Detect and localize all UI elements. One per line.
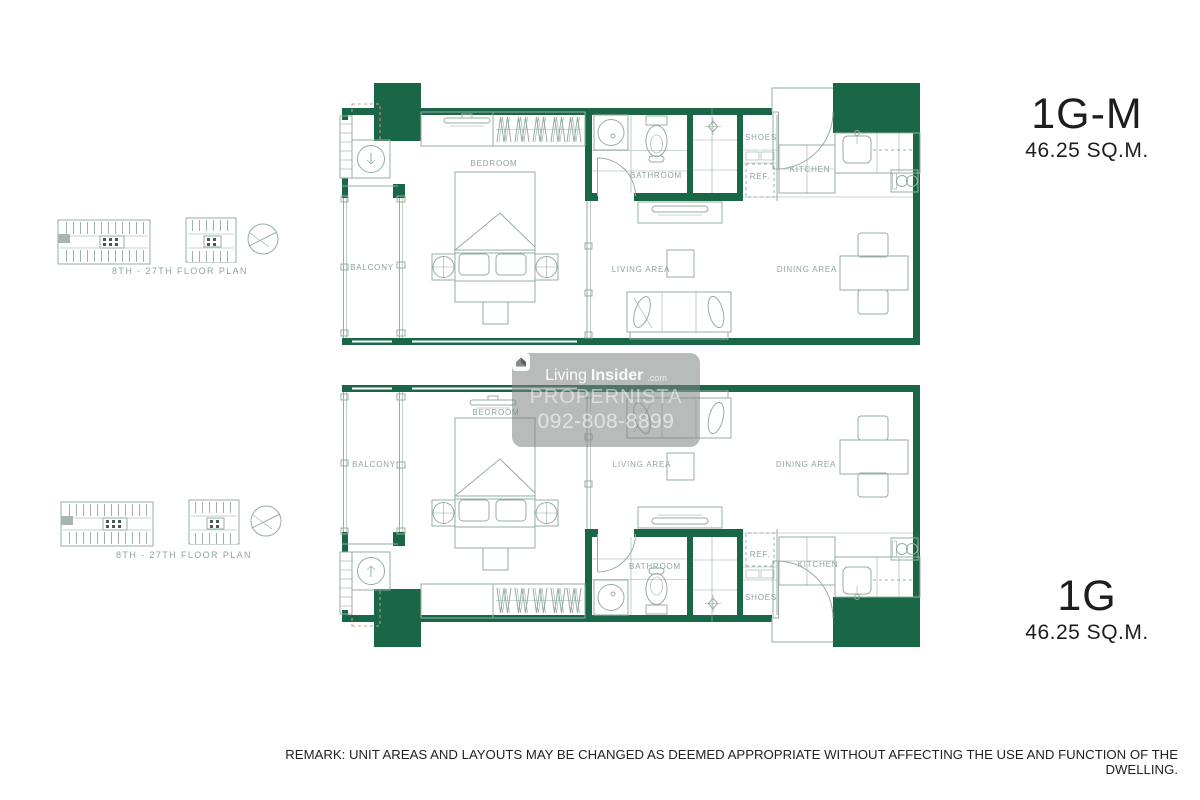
watermark: LivingInsider.com PROPERNISTA 092-808-88… [512, 353, 700, 447]
unit-area: 46.25 SQ.M. [982, 621, 1192, 645]
room-label-balcony: BALCONY [350, 263, 394, 272]
key-plan-top: 8TH - 27TH FLOOR PLAN [58, 218, 278, 276]
room-label-kitchen: KITCHEN [798, 560, 839, 569]
key-plan-caption: 8TH - 27TH FLOOR PLAN [116, 550, 252, 560]
brand-living: Living [545, 367, 587, 385]
unit-title-1gm: 1G-M 46.25 SQ.M. [982, 93, 1192, 163]
key-plan-bottom: 8TH - 27TH FLOOR PLAN [61, 500, 281, 560]
room-label-dining: DINING AREA [776, 460, 836, 469]
unit-name: 1G [982, 575, 1192, 618]
bed [432, 172, 558, 324]
room-label-shoes: SHOES [745, 133, 777, 142]
tv-shelf [470, 396, 516, 408]
tv-shelf [444, 114, 490, 126]
room-label-bedroom: BEDROOM [471, 159, 518, 168]
unit-area: 46.25 SQ.M. [982, 139, 1192, 163]
remark-text: REMARK: UNIT AREAS AND LAYOUTS MAY BE CH… [278, 747, 1178, 777]
brand-insider: Insider [591, 367, 643, 385]
room-label-living: LIVING AREA [613, 460, 672, 469]
floorplan-page: 8TH - 27TH FLOOR PLAN 8TH - 27TH FLOOR P… [0, 0, 1200, 800]
room-label-bathroom: BATHROOM [629, 562, 681, 571]
key-plan-caption: 8TH - 27TH FLOOR PLAN [112, 266, 248, 276]
room-label-ref: REF. [750, 172, 771, 181]
brand-tld: .com [647, 373, 667, 383]
unit-name: 1G-M [982, 93, 1192, 136]
unit-plan-1gm: BEDROOM BALCONY BATHROOM SHOES REF. KITC… [340, 83, 920, 345]
watermark-phone: 092-808-8899 [538, 410, 675, 434]
room-label-ref: REF. [750, 550, 771, 559]
room-label-living: LIVING AREA [612, 265, 671, 274]
room-label-dining: DINING AREA [777, 265, 837, 274]
room-label-shoes: SHOES [745, 593, 777, 602]
watermark-line2: PROPERNISTA [530, 386, 683, 409]
room-label-kitchen: KITCHEN [790, 165, 831, 174]
room-label-balcony: BALCONY [352, 460, 396, 469]
room-label-bathroom: BATHROOM [630, 171, 682, 180]
living-insider-logo-icon [512, 353, 530, 371]
unit-title-1g: 1G 46.25 SQ.M. [982, 575, 1192, 645]
